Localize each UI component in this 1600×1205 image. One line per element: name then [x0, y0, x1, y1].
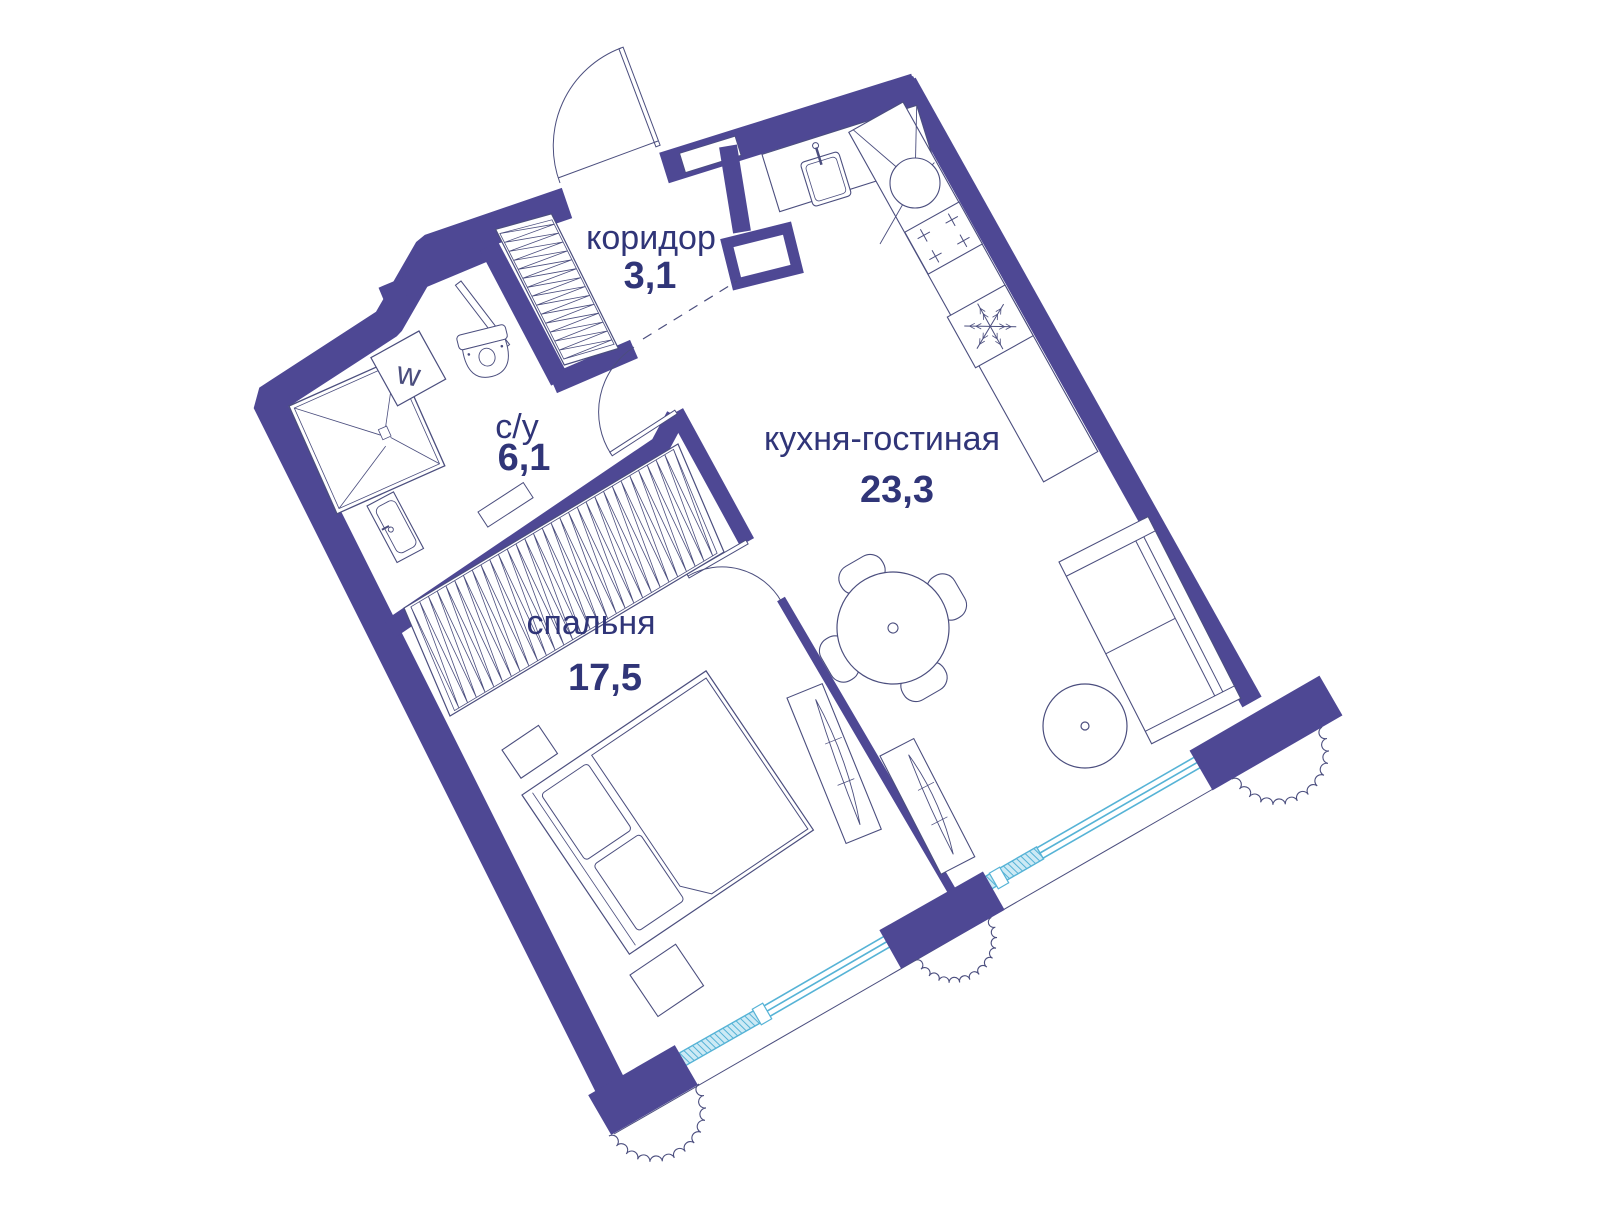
svg-text:коридор: коридор	[586, 219, 716, 257]
svg-text:3,1: 3,1	[624, 255, 677, 297]
svg-text:кухня-гостиная: кухня-гостиная	[764, 420, 1000, 458]
svg-text:23,3: 23,3	[860, 469, 934, 511]
svg-text:спальня: спальня	[526, 604, 655, 642]
svg-text:6,1: 6,1	[498, 437, 551, 479]
svg-text:17,5: 17,5	[568, 657, 642, 699]
